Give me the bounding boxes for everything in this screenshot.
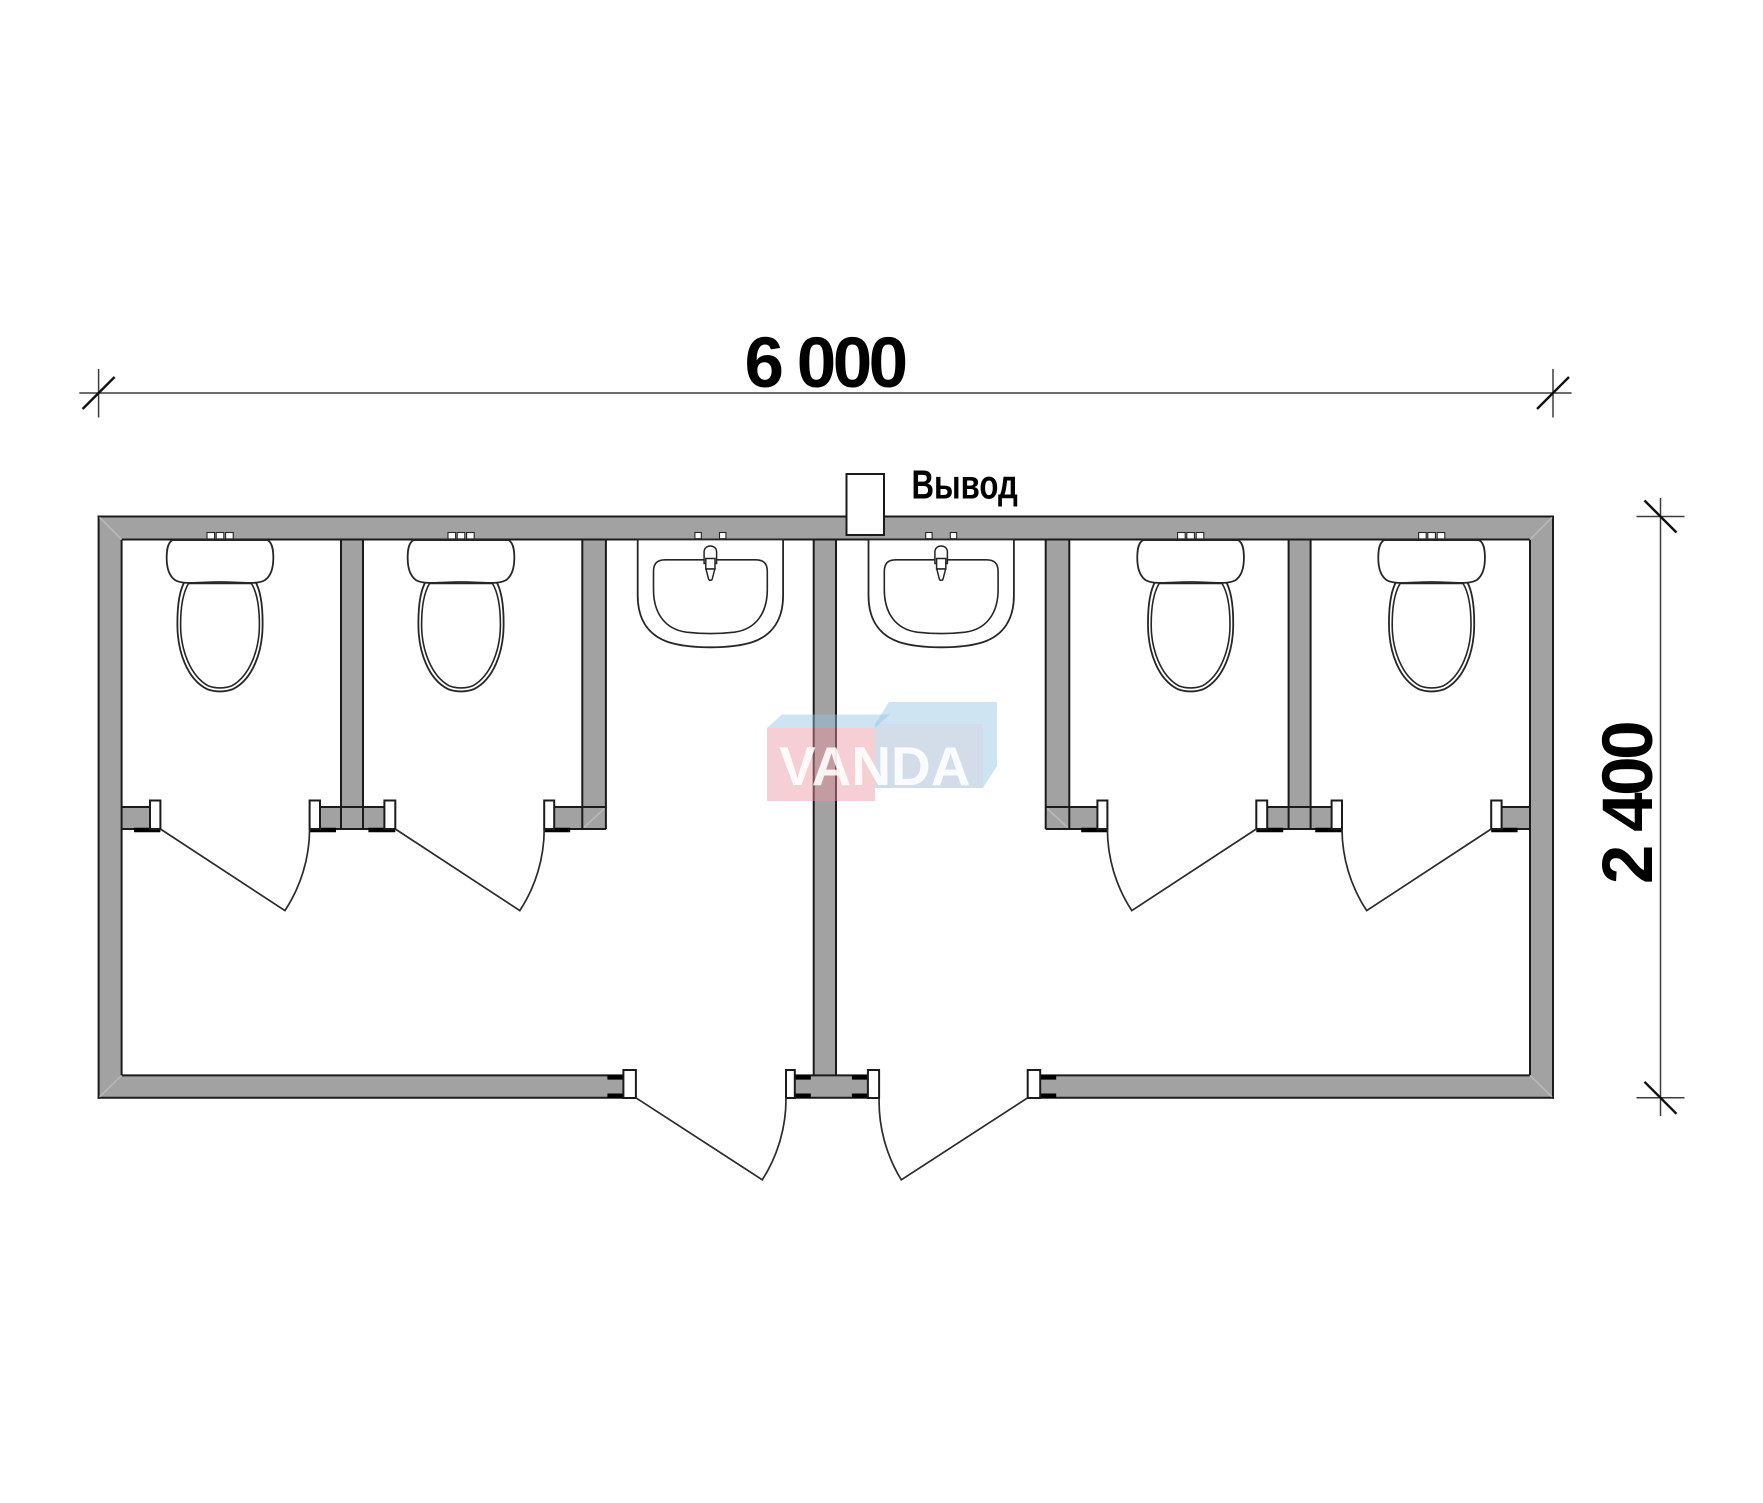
svg-text:Вывод: Вывод xyxy=(912,461,1018,507)
svg-text:VANDA: VANDA xyxy=(779,735,970,797)
svg-text:6 000: 6 000 xyxy=(745,324,906,403)
svg-text:2 400: 2 400 xyxy=(1589,723,1668,884)
